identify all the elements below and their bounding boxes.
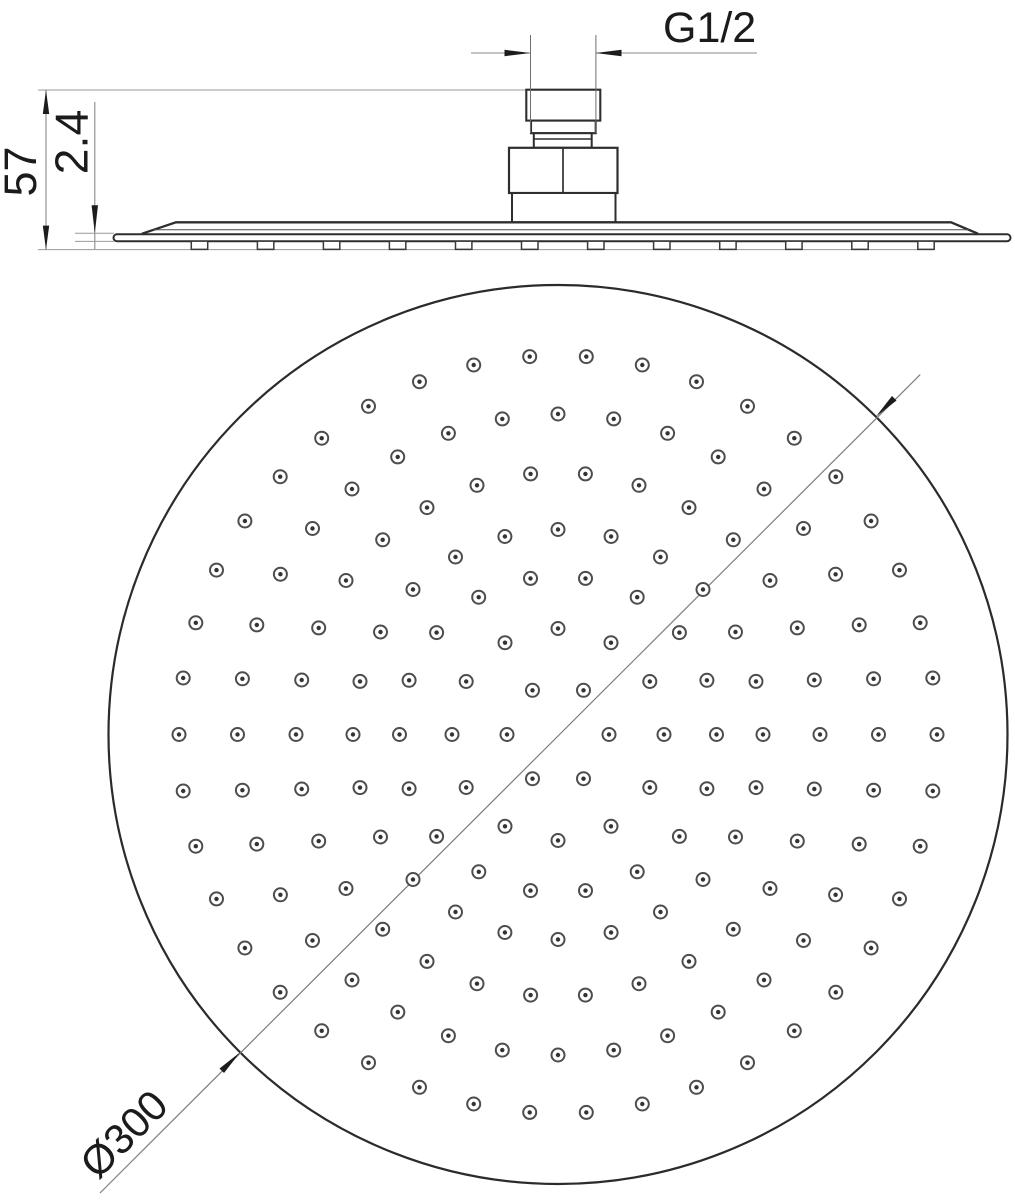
svg-text:G1/2: G1/2 bbox=[663, 4, 756, 52]
svg-text:57: 57 bbox=[0, 146, 46, 196]
svg-text:2.4: 2.4 bbox=[45, 110, 97, 175]
